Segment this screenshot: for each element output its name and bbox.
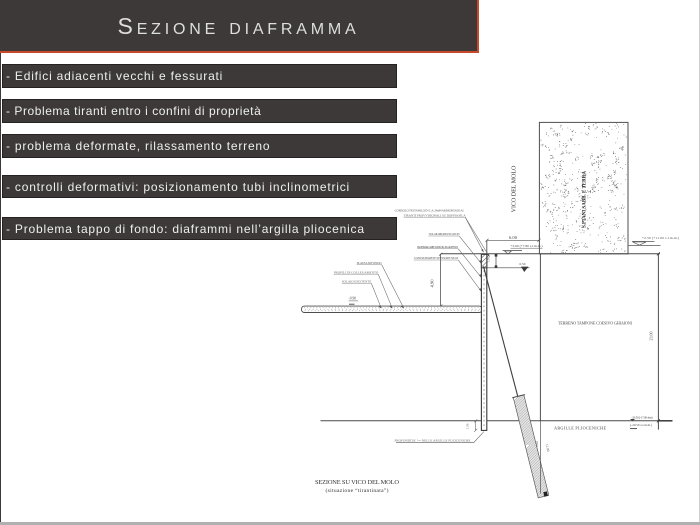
svg-text:12.00: 12.00: [545, 444, 551, 453]
svg-text:2.00: 2.00: [535, 441, 539, 447]
svg-text:SOLAIO RIGIDO SP=20CM: SOLAIO RIGIDO SP=20CM: [429, 232, 460, 236]
svg-text:TIRANTI PROVVISIONALI SU DOPPI: TIRANTI PROVVISIONALI SU DOPPIA FILA: [404, 213, 467, 217]
svg-text:PLATEA DI FONDO: PLATEA DI FONDO: [357, 261, 383, 265]
svg-text:6.00: 6.00: [509, 235, 518, 240]
svg-text:23.00: 23.00: [649, 332, 654, 341]
svg-text:PROFONDITA' >= NELLE ARGILLE P: PROFONDITA' >= NELLE ARGILLE PLIOCENICHE: [395, 439, 471, 443]
svg-text:PROFILI ARCARECCI DI COLLEGAME: PROFILI ARCARECCI DI COLLEGAMENTO: [417, 245, 459, 249]
svg-text:CORDOLO TESTAPALO IN C.A. 24x8: CORDOLO TESTAPALO IN C.A. 24x84 AMMORSAT…: [395, 209, 464, 213]
svg-text:+2.50 (+11.00 s.l.m.m.): +2.50 (+11.00 s.l.m.m.): [642, 236, 679, 240]
svg-text:PROFILI DI COLLEGAMENTO: PROFILI DI COLLEGAMENTO: [334, 270, 379, 274]
svg-text:1.50: 1.50: [487, 257, 491, 263]
svg-text:0.50: 0.50: [520, 262, 526, 266]
svg-text:SEZIONE SU VICO DEL MOLO: SEZIONE SU VICO DEL MOLO: [315, 479, 399, 486]
svg-text:4.90: 4.90: [430, 279, 435, 288]
svg-text:CONTROPARETE SPESSORE 30CM: CONTROPARETE SPESSORE 30CM: [414, 256, 459, 260]
svg-text:-0.90: -0.90: [349, 297, 357, 301]
svg-text:+3.60 (+7.80 s.l.m.m.): +3.60 (+7.80 s.l.m.m.): [511, 244, 543, 248]
svg-text:VICO DEL MOLO: VICO DEL MOLO: [512, 165, 518, 212]
svg-text:ARGILLE PLIOCENICHE: ARGILLE PLIOCENICHE: [554, 426, 606, 431]
svg-text:(-20.50 s.l.m.m.): (-20.50 s.l.m.m.): [630, 423, 652, 427]
svg-text:S.PIANI SABB. E TERRA: S.PIANI SABB. E TERRA: [583, 171, 588, 228]
svg-text:SOLAIO ESISTENTE: SOLAIO ESISTENTE: [342, 280, 372, 284]
svg-text:TERRENO TAMPONE COESIVO GHIAIO: TERRENO TAMPONE COESIVO GHIAIONI: [558, 321, 633, 326]
svg-text:(situazione “tirantinata”): (situazione “tirantinata”): [326, 487, 389, 494]
svg-text:1.50: 1.50: [466, 423, 470, 429]
svg-text:-20.50 (-17.00 slm): -20.50 (-17.00 slm): [632, 415, 653, 419]
